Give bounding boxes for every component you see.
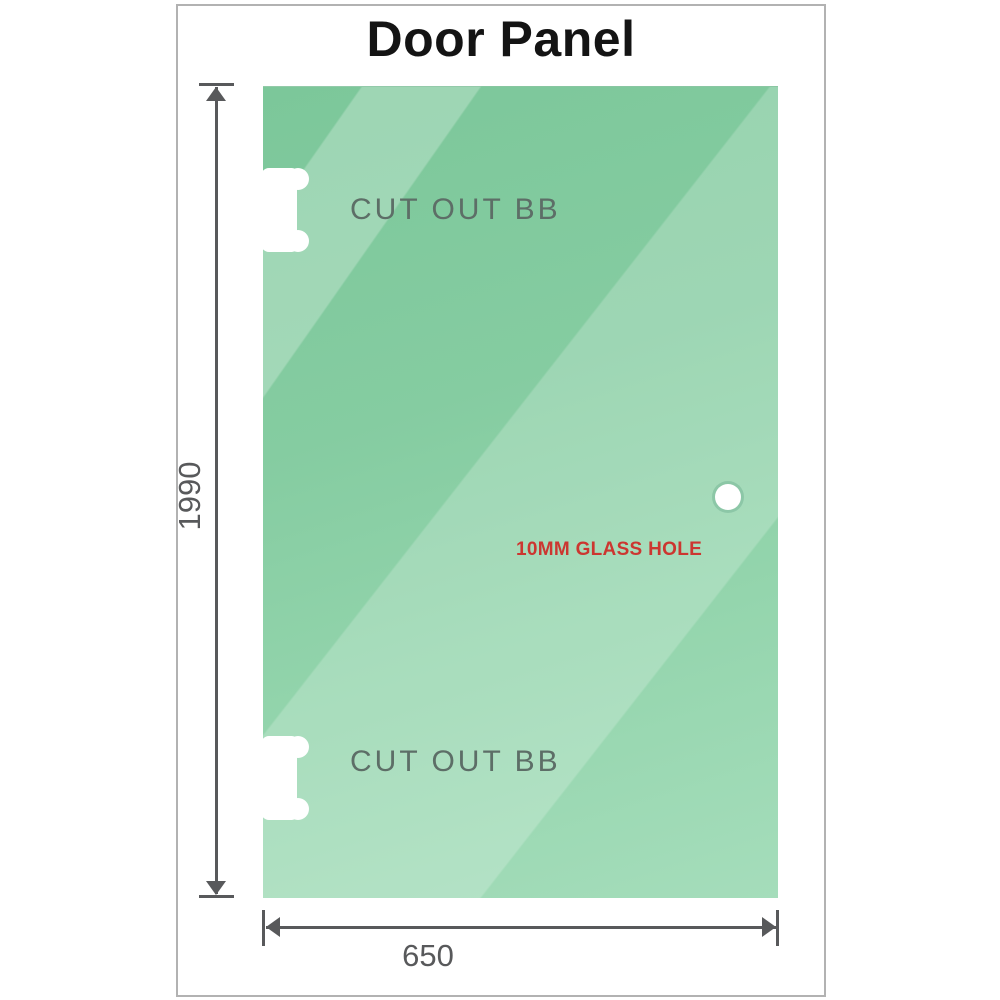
dimension-arrow-up-icon	[206, 87, 226, 101]
width-dimension-line	[266, 926, 776, 929]
cutout-lobe-icon	[287, 230, 309, 252]
cutout-lobe-icon	[287, 168, 309, 190]
width-dimension-tick-left	[262, 910, 265, 946]
width-dimension-value: 650	[378, 938, 478, 974]
dimension-arrow-right-icon	[762, 917, 776, 937]
hinge-cutout-top-icon	[261, 168, 309, 252]
width-dimension-tick-right	[776, 910, 779, 946]
cutout-top-label: CUT OUT BB	[350, 192, 561, 228]
glass-hole-icon	[715, 484, 741, 510]
cutout-lobe-icon	[287, 798, 309, 820]
height-dimension-cap-top	[199, 83, 234, 86]
page-title: Door Panel	[176, 12, 826, 66]
glass-hole-label: 10MM GLASS HOLE	[516, 538, 702, 562]
cutout-bottom-label: CUT OUT BB	[350, 744, 561, 780]
dimension-arrow-down-icon	[206, 881, 226, 895]
height-dimension-cap-bottom	[199, 895, 234, 898]
cutout-lobe-icon	[287, 736, 309, 758]
dimension-arrow-left-icon	[266, 917, 280, 937]
diagram-canvas: Door Panel CUT OUT BB CUT OUT BB 10MM GL…	[0, 0, 1000, 1000]
height-dimension-value: 1990	[172, 426, 208, 566]
height-dimension-line	[215, 87, 218, 894]
hinge-cutout-bottom-icon	[261, 736, 309, 820]
